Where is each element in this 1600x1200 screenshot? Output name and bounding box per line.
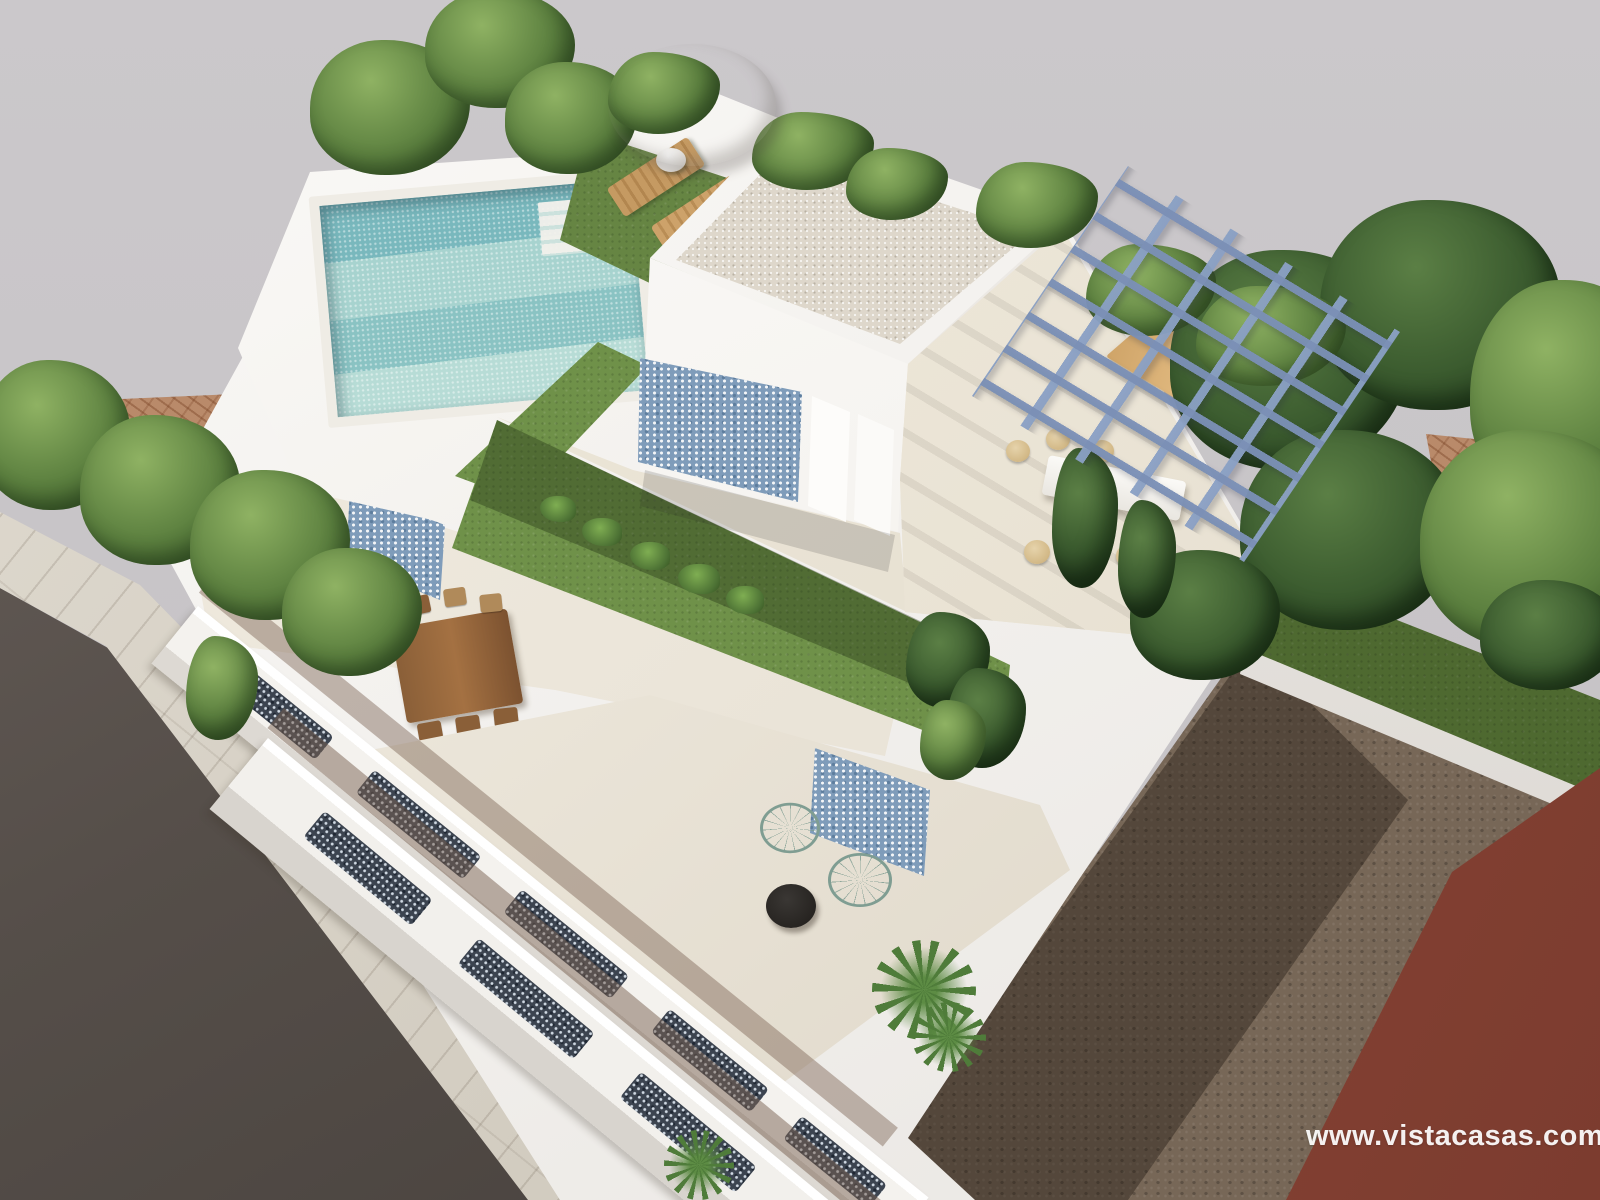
round-coffee-table: [766, 884, 816, 928]
shrub-row: [678, 564, 720, 594]
string-chair: [828, 853, 892, 907]
render-scene: www.vistacasas.com: [0, 0, 1600, 1200]
shrub-row: [540, 496, 576, 522]
hedge: [976, 162, 1098, 248]
palm-plant: [912, 1002, 986, 1072]
string-chair: [760, 803, 820, 853]
watermark: www.vistacasas.com: [1306, 1120, 1600, 1153]
shrub-row: [630, 542, 670, 570]
shrub-row: [726, 586, 764, 614]
sun-umbrella: [608, 44, 776, 166]
wicker-chair: [1006, 440, 1030, 462]
terrace-chair: [479, 593, 503, 613]
wicker-chair: [1024, 540, 1050, 564]
shrub-row: [582, 518, 622, 546]
tree: [1480, 580, 1600, 690]
terrace-chair: [443, 587, 467, 608]
palm-plant: [664, 1130, 734, 1200]
